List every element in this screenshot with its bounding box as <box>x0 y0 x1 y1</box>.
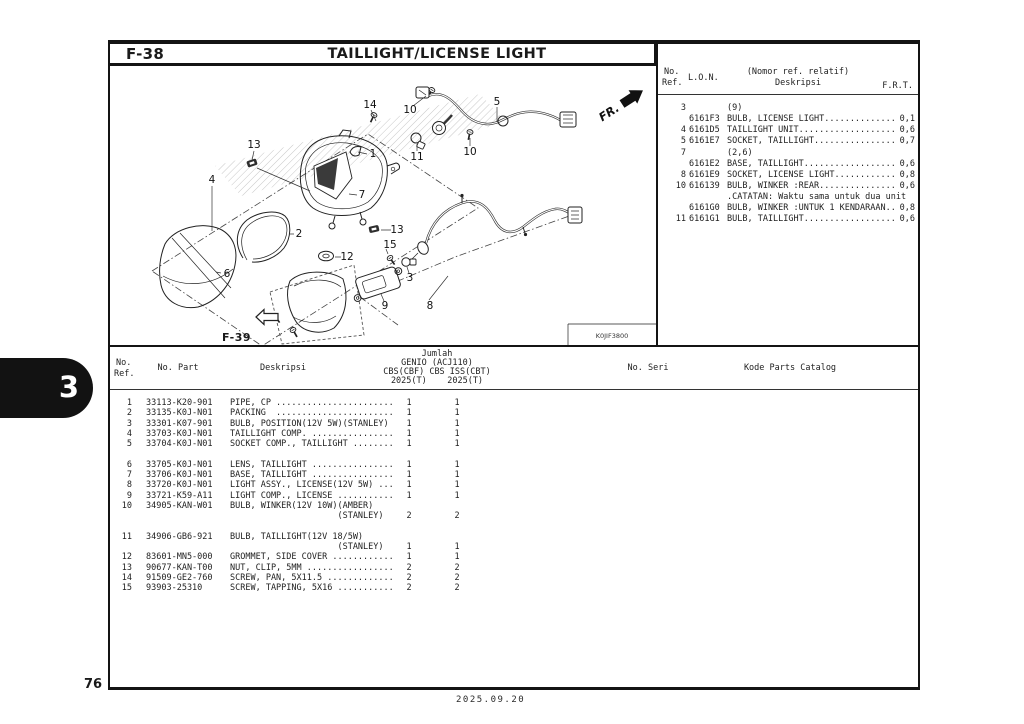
header-bar: F-38 TAILLIGHT/LICENSE LIGHT <box>110 44 656 66</box>
parts-cell-ref: 8 <box>110 480 132 490</box>
grommet <box>319 251 334 261</box>
ref-cell-no: 7 <box>666 148 686 158</box>
parts-cell-desc: BULB, POSITION(12V 5W)(STANLEY) <box>230 419 389 429</box>
parts-table-header: No. Ref. No. Part Deskripsi Jumlah GENIO… <box>110 347 918 390</box>
parts-table-row: 11 34906-GB6-921 BULB, TAILLIGHT(12V 18/… <box>110 532 918 542</box>
ref-cell-lon: 6161G1 <box>689 214 720 224</box>
ref-cell-desc: BULB, WINKER :UNTUK 1 KENDARAAN.. <box>727 203 896 213</box>
ref-cell-frt: 0,8 <box>889 203 915 213</box>
parts-cell-desc: GROMMET, SIDE COVER ............ <box>230 552 394 562</box>
parts-cell-qty1: 2 <box>398 511 420 521</box>
ref-cell-frt: 0,6 <box>889 125 915 135</box>
parts-cell-ref: 4 <box>110 429 132 439</box>
parts-cell-desc: SOCKET COMP., TAILLIGHT ........ <box>230 439 394 449</box>
parts-cell-desc: LIGHT COMP., LICENSE ........... <box>230 491 394 501</box>
parts-cell-desc: LIGHT ASSY., LICENSE(12V 5W) ... <box>230 480 394 490</box>
parts-table-row: 12 83601-MN5-000 GROMMET, SIDE COVER ...… <box>110 552 918 562</box>
ref-cell-desc: .CATATAN: Waktu sama untuk dua unit <box>727 192 906 202</box>
parts-cell-desc: SCREW, PAN, 5X11.5 ............. <box>230 573 394 583</box>
parts-table-row: 7 33706-K0J-N01 BASE, TAILLIGHT ........… <box>110 470 918 480</box>
parts-table-row <box>110 522 918 532</box>
parts-cell-ref: 15 <box>110 583 132 593</box>
parts-table-row: 13 90677-KAN-T00 NUT, CLIP, 5MM ........… <box>110 563 918 573</box>
parts-cell-qty1: 1 <box>398 460 420 470</box>
parts-cell-ref: 10 <box>110 501 132 511</box>
parts-table-row: 14 91509-GE2-760 SCREW, PAN, 5X11.5 ....… <box>110 573 918 583</box>
parts-cell-qty2: 1 <box>446 552 468 562</box>
parts-cell-ref: 13 <box>110 563 132 573</box>
parts-cell-qty2: 1 <box>446 542 468 552</box>
ref-table-row: 8 6161E9 SOCKET, LICENSE LIGHT..........… <box>658 170 918 181</box>
parts-cell-qty2: 1 <box>446 460 468 470</box>
ref-cell-lon: 616139 <box>689 181 720 191</box>
ref-cell-desc: TAILLIGHT UNIT................... <box>727 125 896 135</box>
parts-cell-qty2: 2 <box>446 573 468 583</box>
parts-cell-part: 83601-MN5-000 <box>146 552 213 562</box>
ref-header-deskripsi: Deskripsi <box>722 78 874 88</box>
f39-arrow-icon <box>256 310 278 325</box>
ref-header-relative-note: (Nomor ref. relatif) <box>722 67 874 77</box>
parts-table-row: 5 33704-K0J-N01 SOCKET COMP., TAILLIGHT … <box>110 439 918 449</box>
fr-label: FR. <box>596 101 621 124</box>
clip-13b <box>368 225 379 233</box>
parts-cell-qty1: 1 <box>398 470 420 480</box>
parts-header-ref: Ref. <box>114 369 134 379</box>
parts-table-row: (STANLEY) 1 1 <box>110 542 918 552</box>
parts-cell-qty1: 1 <box>398 542 420 552</box>
ref-cell-frt: 0,6 <box>889 214 915 224</box>
fr-direction: FR. <box>596 84 648 125</box>
ref-cell-desc: BULB, LICENSE LIGHT.............. <box>727 114 896 124</box>
ref-cell-no: 5 <box>666 136 686 146</box>
parts-cell-part: 33703-K0J-N01 <box>146 429 213 439</box>
parts-cell-desc: (STANLEY) <box>230 542 384 552</box>
parts-table-row: 10 34905-KAN-W01 BULB, WINKER(12V 10W)(A… <box>110 501 918 511</box>
ref-cell-no: 4 <box>666 125 686 135</box>
parts-table-row: 1 33113-K20-901 PIPE, CP ...............… <box>110 398 918 408</box>
ref-header-no: No. <box>664 67 679 77</box>
ref-cell-desc: BASE, TAILLIGHT.................. <box>727 159 896 169</box>
exploded-diagram: FR. K0JIF3800 <box>110 66 656 345</box>
parts-cell-desc: PIPE, CP ....................... <box>230 398 394 408</box>
ref-table-header: No. Ref. L.O.N. (Nomor ref. relatif) Des… <box>658 44 918 95</box>
parts-table-rows: 1 33113-K20-901 PIPE, CP ...............… <box>110 398 918 594</box>
bulb-position <box>402 258 416 266</box>
parts-cell-qty1: 1 <box>398 480 420 490</box>
parts-cell-part: 33113-K20-901 <box>146 398 213 408</box>
ref-cell-desc: SOCKET, LICENSE LIGHT............ <box>727 170 896 180</box>
parts-cell-qty1: 1 <box>398 552 420 562</box>
parts-header-deskripsi: Deskripsi <box>238 363 328 373</box>
ref-cell-no: 3 <box>666 103 686 113</box>
parts-cell-ref: 6 <box>110 460 132 470</box>
ref-header-frt: F.R.T. <box>882 81 913 91</box>
page-frame: F-38 TAILLIGHT/LICENSE LIGHT <box>108 40 920 690</box>
parts-cell-desc: BASE, TAILLIGHT ................ <box>230 470 394 480</box>
ref-cell-lon: 6161G0 <box>689 203 720 213</box>
ref-cell-frt: 0,1 <box>889 114 915 124</box>
parts-cell-part: 91509-GE2-760 <box>146 573 213 583</box>
parts-cell-qty2: 1 <box>446 398 468 408</box>
parts-cell-qty2: 2 <box>446 511 468 521</box>
parts-cell-qty2: 1 <box>446 408 468 418</box>
parts-table-row: 15 93903-25310 SCREW, TAPPING, 5X16 ....… <box>110 583 918 593</box>
ref-cell-desc: SOCKET, TAILLIGHT................ <box>727 136 896 146</box>
parts-cell-part: 33135-K0J-N01 <box>146 408 213 418</box>
parts-cell-part: 33720-K0J-N01 <box>146 480 213 490</box>
ref-table-rows: 3 (9) 6161F3 BULB, LICENSE LIGHT........… <box>658 103 918 226</box>
parts-cell-qty2: 1 <box>446 419 468 429</box>
page-number: 76 <box>84 677 102 692</box>
parts-cell-qty1: 1 <box>398 419 420 429</box>
parts-cell-part: 33301-K07-901 <box>146 419 213 429</box>
parts-cell-desc: PACKING ....................... <box>230 408 394 418</box>
parts-table-row: 3 33301-K07-901 BULB, POSITION(12V 5W)(S… <box>110 419 918 429</box>
parts-table-row: 9 33721-K59-A11 LIGHT COMP., LICENSE ...… <box>110 491 918 501</box>
parts-cell-ref: 12 <box>110 552 132 562</box>
diagram-code: K0JIF3800 <box>596 332 629 340</box>
ref-cell-frt: 0,6 <box>889 159 915 169</box>
parts-cell-desc: (STANLEY) <box>230 511 384 521</box>
parts-cell-ref: 5 <box>110 439 132 449</box>
ref-header-ref: Ref. <box>662 78 682 88</box>
parts-cell-part: 93903-25310 <box>146 583 202 593</box>
parts-cell-qty1: 1 <box>398 491 420 501</box>
ref-cell-no: 10 <box>666 181 686 191</box>
parts-table-row <box>110 449 918 459</box>
taillight-packing <box>237 212 289 262</box>
parts-cell-ref: 2 <box>110 408 132 418</box>
ref-cell-no: 11 <box>666 214 686 224</box>
ref-table-row: 6161G0 BULB, WINKER :UNTUK 1 KENDARAAN..… <box>658 203 918 214</box>
section-ref-f39[interactable]: F-39 <box>222 331 251 344</box>
ref-cell-lon: 6161E2 <box>689 159 720 169</box>
wire-harness-license <box>412 194 582 259</box>
ref-cell-lon: 6161E9 <box>689 170 720 180</box>
parts-cell-ref: 9 <box>110 491 132 501</box>
page-title: TAILLIGHT/LICENSE LIGHT <box>220 46 654 62</box>
parts-cell-desc: TAILLIGHT COMP. ................ <box>230 429 394 439</box>
parts-cell-qty1: 2 <box>398 573 420 583</box>
parts-header-part: No. Part <box>138 363 218 373</box>
parts-cell-ref: 11 <box>110 532 132 542</box>
parts-cell-ref: 3 <box>110 419 132 429</box>
parts-cell-qty2: 1 <box>446 439 468 449</box>
parts-cell-part: 33706-K0J-N01 <box>146 470 213 480</box>
fr-arrow-icon <box>618 84 648 111</box>
parts-cell-part: 33721-K59-A11 <box>146 491 213 501</box>
parts-cell-qty2: 2 <box>446 563 468 573</box>
ref-cell-lon: 6161F3 <box>689 114 720 124</box>
ref-cell-lon: 6161E7 <box>689 136 720 146</box>
parts-cell-desc: BULB, WINKER(12V 10W)(AMBER) <box>230 501 373 511</box>
parts-table-row: 2 33135-K0J-N01 PACKING ................… <box>110 408 918 418</box>
parts-table-row: 6 33705-K0J-N01 LENS, TAILLIGHT ........… <box>110 460 918 470</box>
ref-table-row: 10 616139 BULB, WINKER :REAR............… <box>658 181 918 192</box>
parts-table-row: (STANLEY) 2 2 <box>110 511 918 521</box>
body-panel-hatch <box>215 94 506 196</box>
ref-cell-desc: (9) <box>727 103 742 113</box>
ref-table-row: .CATATAN: Waktu sama untuk dua unit <box>658 192 918 203</box>
page-date: 2025.09.20 <box>456 695 525 705</box>
parts-header-seri: No. Seri <box>598 363 698 373</box>
parts-cell-qty1: 2 <box>398 563 420 573</box>
parts-cell-qty2: 1 <box>446 429 468 439</box>
ref-cell-frt: 0,8 <box>889 170 915 180</box>
parts-cell-desc: SCREW, TAPPING, 5X16 ........... <box>230 583 394 593</box>
ref-cell-lon: 6161D5 <box>689 125 720 135</box>
parts-cell-part: 90677-KAN-T00 <box>146 563 213 573</box>
section-tab[interactable]: 3 <box>0 358 93 418</box>
ref-table-row: 6161E2 BASE, TAILLIGHT..................… <box>658 159 918 170</box>
parts-header-no: No. <box>116 358 131 368</box>
parts-cell-qty2: 1 <box>446 480 468 490</box>
taillight-lens <box>160 226 236 308</box>
parts-table-row: 8 33720-K0J-N01 LIGHT ASSY., LICENSE(12V… <box>110 480 918 490</box>
parts-cell-part: 34905-KAN-W01 <box>146 501 213 511</box>
ref-table-row: 11 6161G1 BULB, TAILLIGHT...............… <box>658 214 918 225</box>
parts-header-years: 2025(T) 2025(T) <box>377 376 497 386</box>
ref-cell-desc: (2,6) <box>727 148 753 158</box>
ref-cell-desc: BULB, TAILLIGHT.................. <box>727 214 896 224</box>
parts-cell-qty1: 1 <box>398 429 420 439</box>
parts-cell-qty1: 1 <box>398 408 420 418</box>
parts-cell-part: 33704-K0J-N01 <box>146 439 213 449</box>
page-code: F-38 <box>110 45 220 63</box>
ref-cell-frt: 0,6 <box>889 181 915 191</box>
ref-cell-frt: 0,7 <box>889 136 915 146</box>
parts-cell-ref: 7 <box>110 470 132 480</box>
parts-cell-desc: LENS, TAILLIGHT ................ <box>230 460 394 470</box>
parts-cell-qty1: 1 <box>398 439 420 449</box>
ref-table-row: 3 (9) <box>658 103 918 114</box>
parts-cell-ref: 14 <box>110 573 132 583</box>
parts-cell-qty2: 2 <box>446 583 468 593</box>
ref-table-row: 7 (2,6) <box>658 148 918 159</box>
parts-cell-part: 33705-K0J-N01 <box>146 460 213 470</box>
parts-cell-qty2: 1 <box>446 470 468 480</box>
parts-cell-qty2: 1 <box>446 491 468 501</box>
parts-table: No. Ref. No. Part Deskripsi Jumlah GENIO… <box>110 345 918 687</box>
parts-cell-desc: BULB, TAILLIGHT(12V 18/5W) <box>230 532 363 542</box>
ref-header-lon: L.O.N. <box>688 73 719 83</box>
license-light <box>349 264 407 302</box>
parts-cell-desc: NUT, CLIP, 5MM ................. <box>230 563 394 573</box>
parts-table-row: 4 33703-K0J-N01 TAILLIGHT COMP. ........… <box>110 429 918 439</box>
parts-cell-qty1: 2 <box>398 583 420 593</box>
license-cover-part <box>288 272 346 332</box>
ref-cell-no: 8 <box>666 170 686 180</box>
ref-table-row: 4 6161D5 TAILLIGHT UNIT.................… <box>658 125 918 136</box>
parts-header-kode: Kode Parts Catalog <box>720 363 860 373</box>
ref-table-row: 5 6161E7 SOCKET, TAILLIGHT..............… <box>658 136 918 147</box>
ref-table: No. Ref. L.O.N. (Nomor ref. relatif) Des… <box>656 44 918 345</box>
ref-cell-desc: BULB, WINKER :REAR............... <box>727 181 896 191</box>
parts-cell-ref: 1 <box>110 398 132 408</box>
ref-table-row: 6161F3 BULB, LICENSE LIGHT..............… <box>658 114 918 125</box>
parts-cell-part: 34906-GB6-921 <box>146 532 213 542</box>
parts-cell-qty1: 1 <box>398 398 420 408</box>
